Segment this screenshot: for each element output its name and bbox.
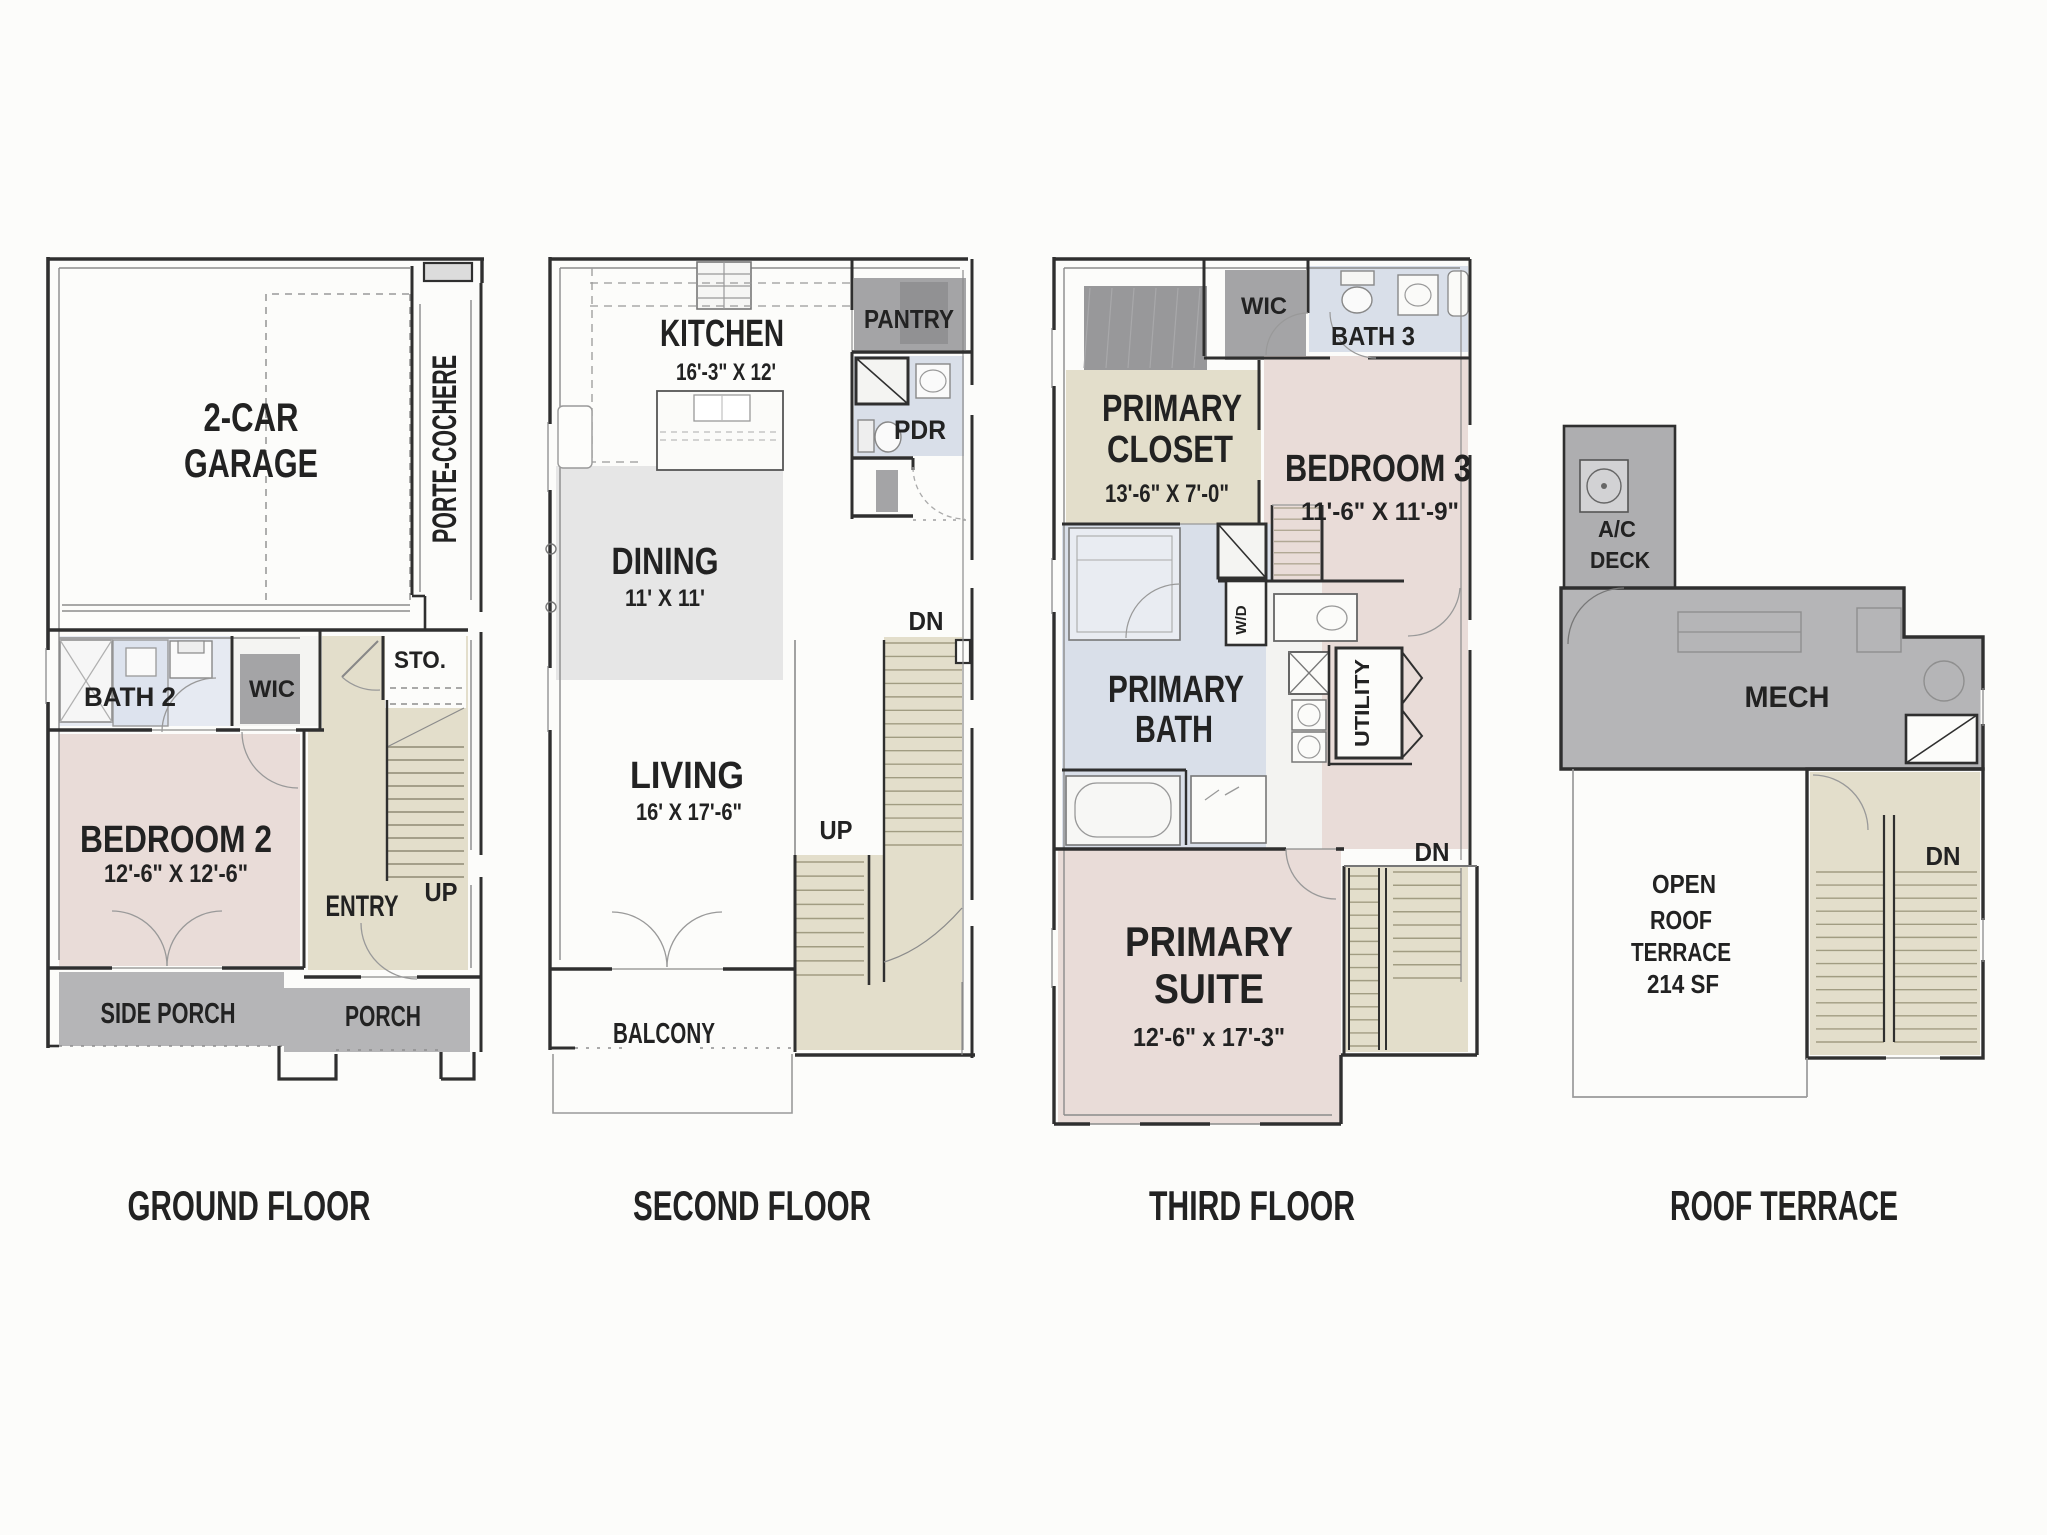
svg-text:DINING: DINING: [612, 541, 719, 583]
svg-text:GROUND FLOOR: GROUND FLOOR: [128, 1182, 371, 1229]
svg-text:12'-6" X 12'-6": 12'-6" X 12'-6": [104, 860, 248, 888]
svg-text:11' X 11': 11' X 11': [625, 585, 705, 612]
svg-text:THIRD FLOOR: THIRD FLOOR: [1149, 1182, 1355, 1229]
svg-text:OPEN: OPEN: [1652, 869, 1716, 899]
svg-text:DECK: DECK: [1590, 547, 1650, 573]
svg-text:ROOF: ROOF: [1650, 905, 1712, 935]
svg-text:PDR: PDR: [894, 415, 946, 445]
svg-text:SECOND FLOOR: SECOND FLOOR: [633, 1182, 871, 1229]
svg-text:13'-6" X 7'-0": 13'-6" X 7'-0": [1105, 480, 1229, 508]
svg-text:16'-3" X 12': 16'-3" X 12': [676, 359, 776, 386]
svg-text:A/C: A/C: [1598, 516, 1636, 542]
svg-text:BEDROOM 2: BEDROOM 2: [80, 819, 272, 861]
svg-text:2-CAR: 2-CAR: [204, 396, 299, 440]
svg-text:BEDROOM 3: BEDROOM 3: [1285, 448, 1471, 490]
svg-text:WIC: WIC: [1241, 293, 1287, 320]
svg-text:DN: DN: [909, 606, 944, 636]
svg-text:214 SF: 214 SF: [1647, 969, 1719, 999]
svg-text:STO.: STO.: [394, 647, 446, 674]
svg-text:UTILITY: UTILITY: [1352, 658, 1374, 747]
svg-text:PRIMARY: PRIMARY: [1125, 918, 1293, 965]
svg-text:16' X 17'-6": 16' X 17'-6": [636, 799, 742, 826]
svg-text:PORTE-COCHERE: PORTE-COCHERE: [426, 355, 464, 543]
svg-text:11'-6" X 11'-9": 11'-6" X 11'-9": [1301, 498, 1459, 526]
svg-text:PORCH: PORCH: [345, 1001, 421, 1033]
svg-text:DN: DN: [1415, 837, 1450, 867]
svg-text:BATH: BATH: [1135, 709, 1213, 751]
svg-text:BALCONY: BALCONY: [613, 1018, 715, 1050]
svg-text:PRIMARY: PRIMARY: [1108, 669, 1244, 711]
svg-text:TERRACE: TERRACE: [1631, 937, 1731, 967]
svg-text:PANTRY: PANTRY: [864, 304, 954, 334]
svg-text:UP: UP: [425, 877, 458, 907]
svg-text:BATH 2: BATH 2: [84, 682, 176, 712]
svg-text:SUITE: SUITE: [1154, 965, 1264, 1012]
svg-text:MECH: MECH: [1745, 681, 1830, 714]
svg-text:BATH 3: BATH 3: [1331, 321, 1415, 351]
svg-text:PRIMARY: PRIMARY: [1102, 388, 1242, 430]
svg-text:SIDE PORCH: SIDE PORCH: [101, 998, 236, 1030]
svg-text:KITCHEN: KITCHEN: [660, 313, 784, 355]
svg-text:LIVING: LIVING: [630, 755, 744, 797]
svg-text:UP: UP: [820, 815, 853, 845]
svg-text:12'-6" x 17'-3": 12'-6" x 17'-3": [1133, 1022, 1285, 1052]
svg-text:DN: DN: [1926, 841, 1961, 871]
svg-text:W/D: W/D: [1233, 605, 1250, 634]
svg-text:WIC: WIC: [249, 676, 295, 703]
svg-text:ENTRY: ENTRY: [326, 890, 399, 923]
svg-text:ROOF TERRACE: ROOF TERRACE: [1670, 1182, 1898, 1229]
svg-text:GARAGE: GARAGE: [184, 442, 318, 486]
svg-text:CLOSET: CLOSET: [1107, 429, 1233, 471]
